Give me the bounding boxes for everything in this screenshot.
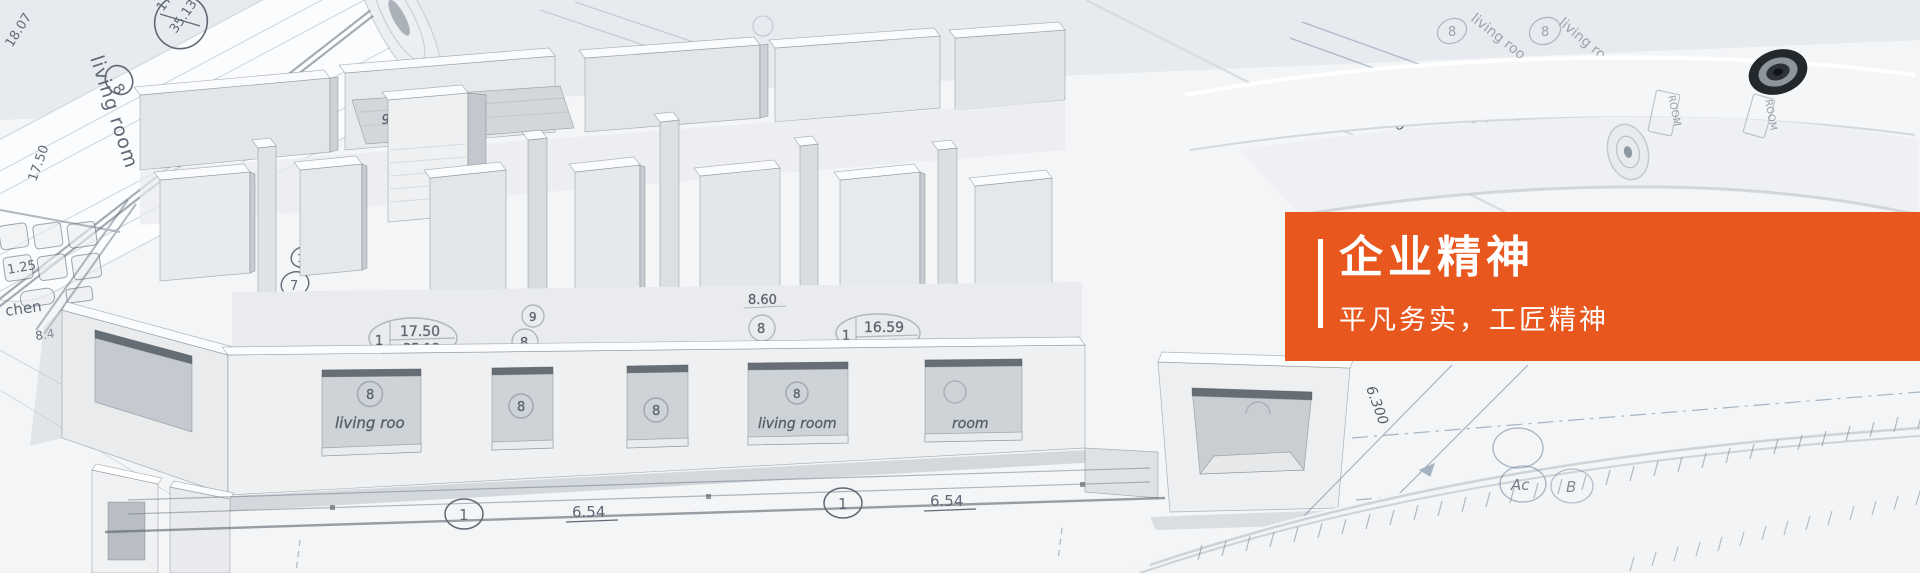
banner-title: 企业精神 <box>1339 236 1535 280</box>
stamp2-area: 16.59 <box>864 320 904 336</box>
circled-b: B <box>1566 478 1576 496</box>
circled-8-opening3: 8 <box>652 404 660 419</box>
circled-8-opening1: 8 <box>366 388 374 403</box>
circled-ac: Ac <box>1510 476 1530 494</box>
dimension-6-54-left: 6.54 <box>572 503 605 521</box>
dimension-8-60: 8.60 <box>748 293 777 308</box>
caption-accent-bar <box>1318 239 1323 328</box>
circled-8-opening2: 8 <box>517 400 525 415</box>
stamp1-area: 17.50 <box>400 324 440 340</box>
circled-8-floor-2: 8 <box>757 322 765 337</box>
circled-8-opening4: 8 <box>793 387 801 401</box>
circled-8-sheet: 8 <box>1448 25 1456 40</box>
banner-subtitle: 平凡务实，工匠精神 <box>1339 306 1609 336</box>
dimension-6-54-right: 6.54 <box>930 492 963 510</box>
hero-banner: 8 living roo 8 living room 5550 ROOM ROO… <box>0 0 1920 573</box>
living-room-opening1: living roo <box>335 414 405 432</box>
room-opening5: room <box>952 416 989 432</box>
circled-8-sheet-2: 8 <box>1541 25 1549 40</box>
circled-1-dim-right: 1 <box>838 495 848 513</box>
circled-9: 9 <box>529 310 537 324</box>
circled-1-dim-left: 1 <box>459 506 469 524</box>
banner-caption-box: 企业精神 平凡务实，工匠精神 <box>1285 212 1920 361</box>
living-room-opening4: living room <box>758 416 837 432</box>
